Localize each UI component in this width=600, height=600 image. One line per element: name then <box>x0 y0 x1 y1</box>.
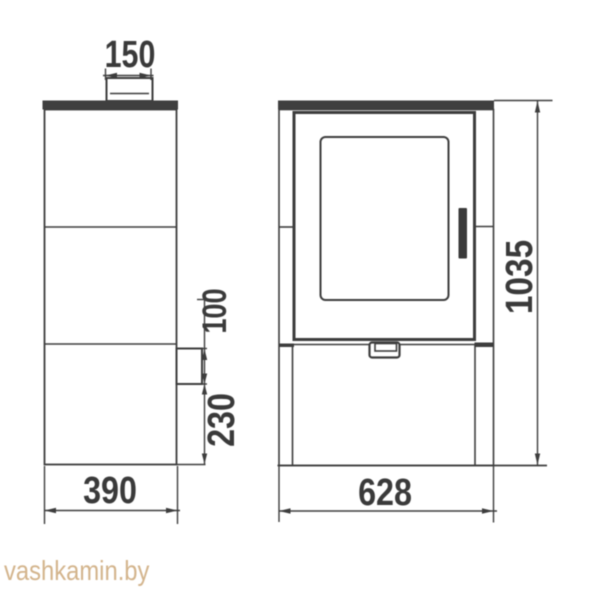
svg-text:230: 230 <box>201 393 243 447</box>
svg-text:100: 100 <box>195 288 234 333</box>
svg-text:628: 628 <box>358 472 412 514</box>
svg-text:150: 150 <box>105 34 156 76</box>
svg-text:390: 390 <box>83 470 137 512</box>
svg-text:vashkamin.by: vashkamin.by <box>4 554 149 586</box>
svg-text:1035: 1035 <box>498 240 540 314</box>
